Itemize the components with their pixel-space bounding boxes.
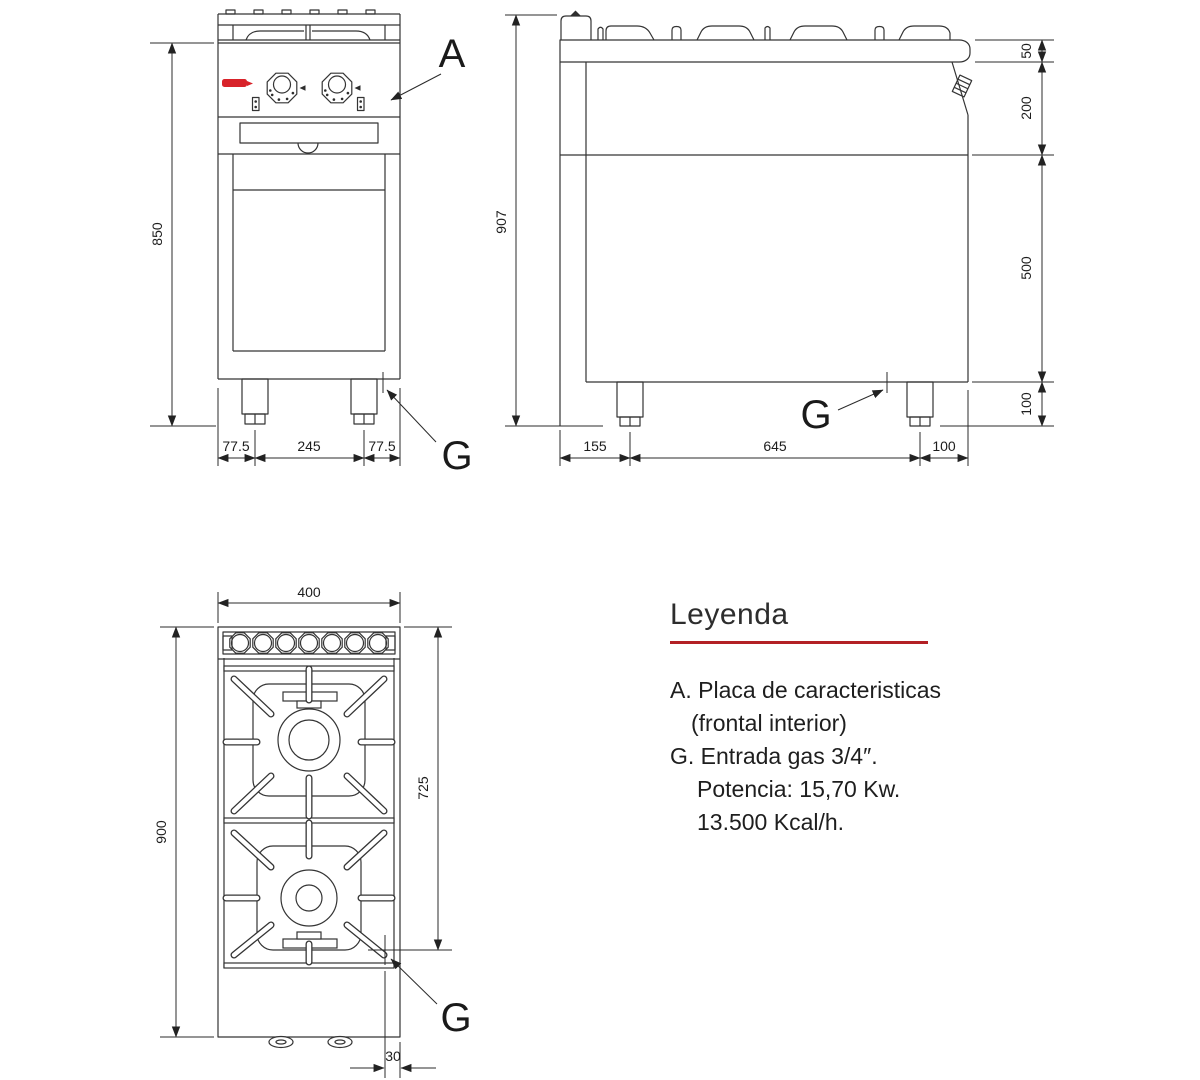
dim-50: 50: [1018, 43, 1034, 59]
dim-100-bottom: 100: [932, 438, 956, 454]
callout-g-label: G: [440, 996, 471, 1040]
burner-ring-inner: [289, 720, 329, 760]
burner-ring-inner: [296, 885, 322, 911]
dim-850: 850: [149, 222, 165, 246]
front-callouts: A G: [383, 32, 473, 478]
legend-item-a: A. Placa de caracteristicas: [670, 674, 960, 707]
cabinet-door: [233, 154, 385, 351]
callout-g-label: G: [441, 434, 472, 478]
dim-900: 900: [153, 820, 169, 844]
burner-1: [226, 669, 392, 816]
dim-500: 500: [1018, 256, 1034, 280]
drawing-canvas: 850 77.5 245 77.5 A G: [0, 0, 1200, 1080]
legend-item-kcal: 13.500 Kcal/h.: [670, 806, 960, 839]
technical-drawing-page: 850 77.5 245 77.5 A G: [0, 0, 1200, 1080]
top-view-feet: [269, 1037, 352, 1048]
dim-245: 245: [297, 438, 321, 454]
front-control-panel: [222, 73, 364, 110]
burner-2: [226, 823, 392, 962]
dim-155: 155: [583, 438, 607, 454]
dim-77-5-right: 77.5: [368, 438, 395, 454]
dim-645: 645: [763, 438, 787, 454]
side-bevel: [952, 62, 968, 382]
legend-item-power: Potencia: 15,70 Kw.: [670, 773, 960, 806]
side-view: 907 50 200 500 100 155 645 100 G: [493, 11, 1054, 467]
top-view: 400 900 725 30 G: [153, 584, 472, 1078]
dim-907: 907: [493, 210, 509, 234]
front-unit-outline: [218, 10, 400, 424]
dim-77-5-left: 77.5: [222, 438, 249, 454]
dim-400: 400: [297, 584, 321, 600]
callout-a-arrow: [391, 74, 441, 100]
drawer-handle-recess: [240, 123, 378, 143]
legend-red-rule: [670, 641, 928, 644]
legend-item-g: G. Entrada gas 3/4″.: [670, 740, 960, 773]
brand-logo-mark: [222, 79, 253, 87]
callout-g-label: G: [800, 393, 831, 437]
callout-a-label: A: [439, 32, 466, 76]
dim-725: 725: [415, 776, 431, 800]
legend-item-a-sub: (frontal interior): [670, 707, 960, 740]
callout-g-arrow: [387, 390, 436, 442]
top-dimensions: 400 900 725 30: [153, 584, 452, 1078]
legend-title: Leyenda: [670, 598, 960, 632]
callout-g-arrow: [391, 959, 437, 1004]
front-dimensions: 850 77.5 245 77.5: [149, 43, 400, 466]
handle-notch: [298, 143, 318, 153]
front-view: 850 77.5 245 77.5 A G: [149, 10, 473, 478]
side-unit-outline: [505, 11, 1054, 427]
side-dimensions: 907 50 200 500 100 155 645 100: [493, 15, 1054, 466]
legend-items: A. Placa de caracteristicas (frontal int…: [670, 674, 960, 839]
dim-100-right: 100: [1018, 392, 1034, 416]
worktop-profile: [560, 40, 970, 62]
top-callouts: G: [385, 935, 472, 1040]
dim-200: 200: [1018, 96, 1034, 120]
callout-g-arrow: [838, 390, 883, 410]
legend-panel: Leyenda A. Placa de caracteristicas (fro…: [670, 598, 960, 839]
dim-30: 30: [385, 1048, 401, 1064]
